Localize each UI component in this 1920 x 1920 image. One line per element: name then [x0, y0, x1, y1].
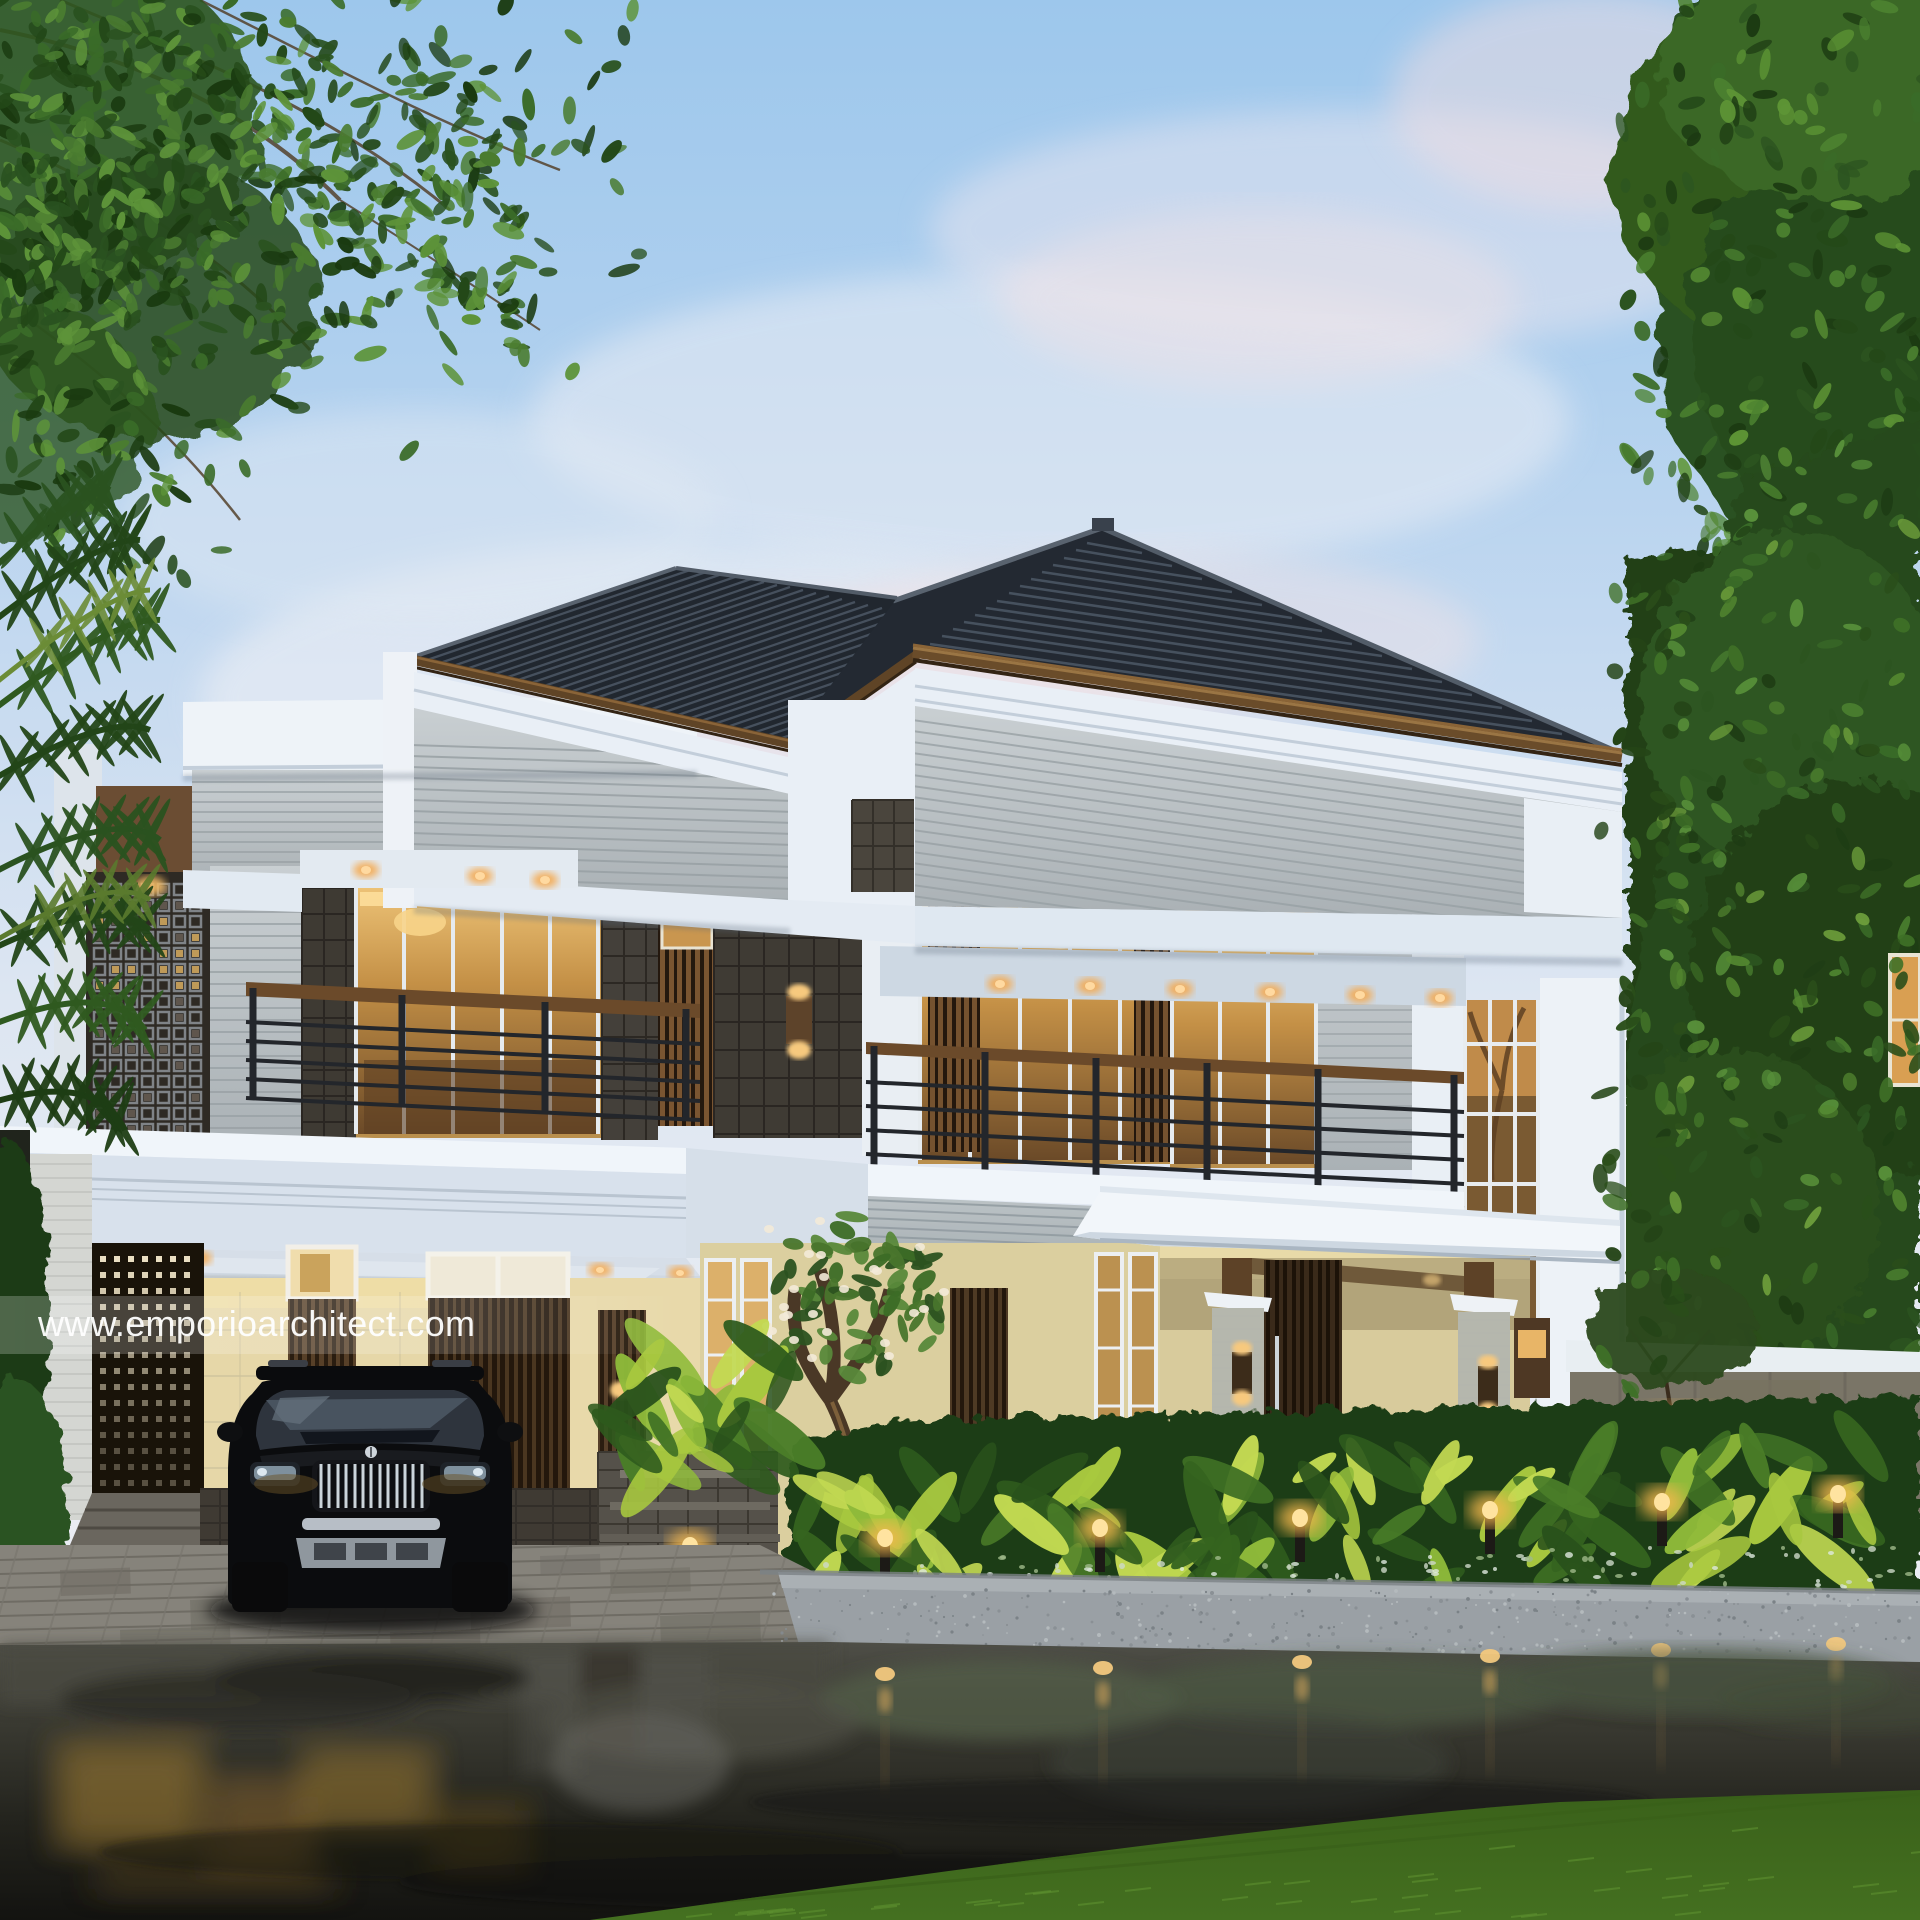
svg-text:www.emporioarchitect.com: www.emporioarchitect.com: [37, 1303, 475, 1344]
